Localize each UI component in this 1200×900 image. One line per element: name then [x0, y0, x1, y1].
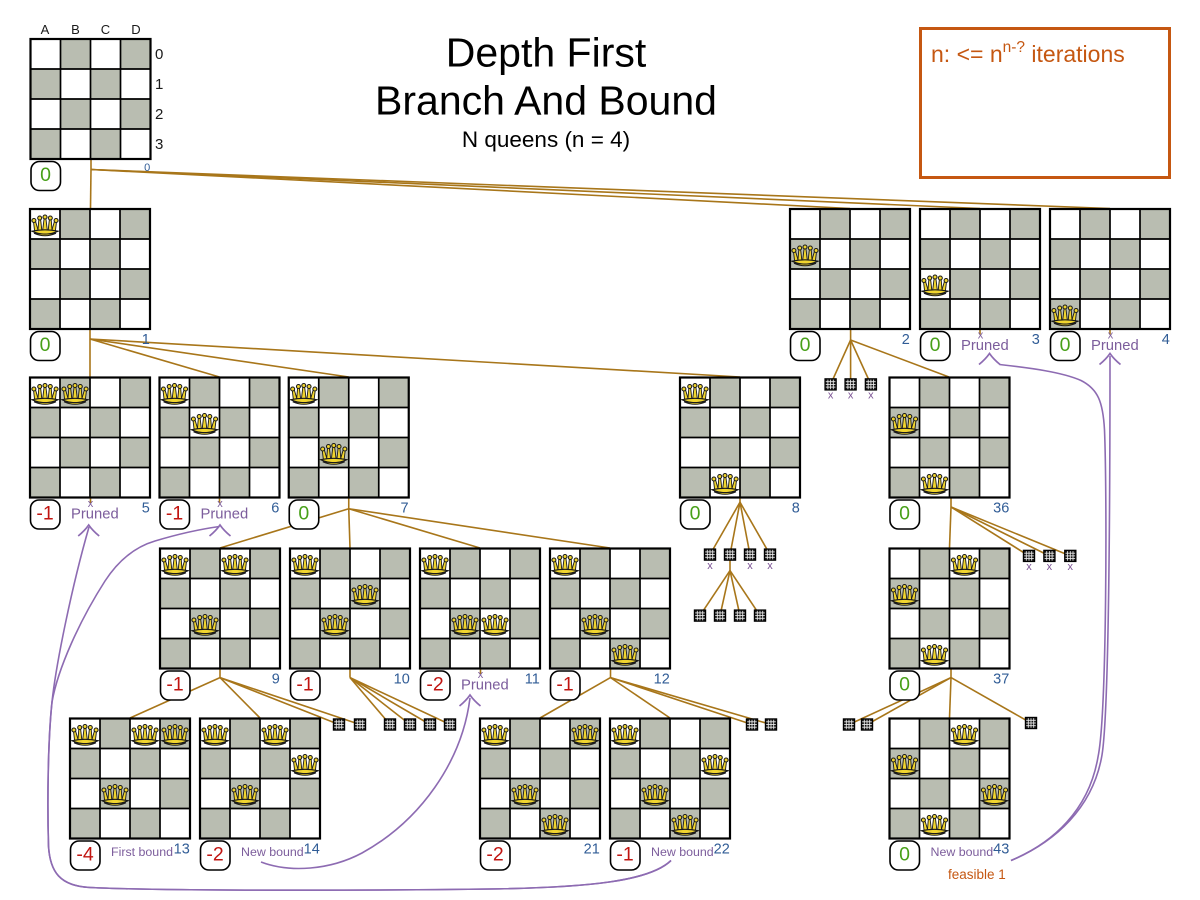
svg-text:0: 0	[899, 503, 910, 525]
svg-text:22: 22	[714, 842, 730, 858]
svg-text:x: x	[1068, 561, 1074, 573]
svg-text:0: 0	[690, 503, 701, 525]
svg-text:x: x	[868, 390, 874, 402]
svg-text:B: B	[71, 22, 80, 37]
svg-text:x: x	[1026, 561, 1032, 573]
svg-text:9: 9	[272, 672, 280, 688]
svg-text:-1: -1	[166, 674, 183, 696]
svg-text:New bound: New bound	[931, 845, 994, 859]
svg-text:36: 36	[993, 501, 1009, 517]
svg-text:4: 4	[1162, 332, 1170, 348]
svg-text:Pruned: Pruned	[201, 507, 249, 523]
svg-text:x: x	[1047, 561, 1053, 573]
svg-text:Pruned: Pruned	[461, 678, 509, 694]
svg-text:-1: -1	[296, 674, 313, 696]
svg-text:0: 0	[899, 674, 910, 696]
svg-text:x: x	[828, 390, 834, 402]
svg-text:x: x	[747, 560, 753, 572]
svg-text:11: 11	[525, 672, 540, 688]
svg-text:13: 13	[174, 842, 190, 858]
svg-text:7: 7	[400, 501, 408, 517]
svg-text:x: x	[848, 390, 854, 402]
svg-text:6: 6	[271, 501, 279, 517]
svg-text:-1: -1	[556, 674, 573, 696]
svg-text:New bound: New bound	[241, 845, 304, 859]
svg-text:feasible 1: feasible 1	[948, 867, 1006, 882]
svg-text:-1: -1	[36, 503, 53, 525]
svg-text:0: 0	[298, 503, 309, 525]
svg-text:Pruned: Pruned	[1091, 338, 1139, 354]
svg-text:37: 37	[993, 672, 1009, 688]
svg-text:New bound: New bound	[651, 845, 714, 859]
svg-text:-1: -1	[616, 844, 633, 866]
svg-text:0: 0	[155, 46, 163, 63]
svg-text:0: 0	[40, 164, 51, 186]
svg-text:-2: -2	[426, 674, 443, 696]
svg-text:21: 21	[584, 842, 600, 858]
svg-text:x: x	[767, 560, 773, 572]
svg-text:3: 3	[155, 136, 163, 153]
svg-text:1: 1	[155, 76, 163, 93]
svg-text:0: 0	[1060, 334, 1071, 356]
svg-text:3: 3	[1032, 332, 1040, 348]
svg-text:Depth First: Depth First	[446, 30, 647, 76]
svg-text:0: 0	[930, 334, 941, 356]
svg-text:0: 0	[40, 334, 51, 356]
svg-text:0: 0	[144, 162, 150, 174]
svg-text:-1: -1	[166, 503, 183, 525]
svg-text:n: <= nn-? iterations: n: <= nn-? iterations	[931, 39, 1125, 67]
svg-text:Branch And Bound: Branch And Bound	[375, 78, 717, 124]
svg-text:A: A	[41, 22, 50, 37]
svg-text:C: C	[101, 22, 110, 37]
svg-text:D: D	[131, 22, 140, 37]
svg-text:14: 14	[304, 842, 320, 858]
svg-text:Pruned: Pruned	[961, 338, 1009, 354]
svg-text:First bound: First bound	[111, 845, 173, 859]
svg-text:0: 0	[800, 334, 811, 356]
svg-text:-2: -2	[206, 844, 223, 866]
svg-text:-2: -2	[486, 844, 503, 866]
svg-text:0: 0	[899, 844, 910, 866]
svg-text:Pruned: Pruned	[71, 507, 119, 523]
svg-text:8: 8	[792, 501, 800, 517]
svg-text:5: 5	[142, 501, 150, 517]
svg-text:2: 2	[155, 106, 163, 123]
svg-text:N queens (n = 4): N queens (n = 4)	[462, 127, 630, 152]
svg-text:1: 1	[142, 332, 150, 348]
svg-text:x: x	[707, 560, 713, 572]
svg-text:-4: -4	[76, 844, 93, 866]
svg-text:43: 43	[993, 842, 1009, 858]
svg-text:12: 12	[654, 672, 670, 688]
svg-text:10: 10	[394, 672, 410, 688]
svg-text:2: 2	[902, 332, 910, 348]
